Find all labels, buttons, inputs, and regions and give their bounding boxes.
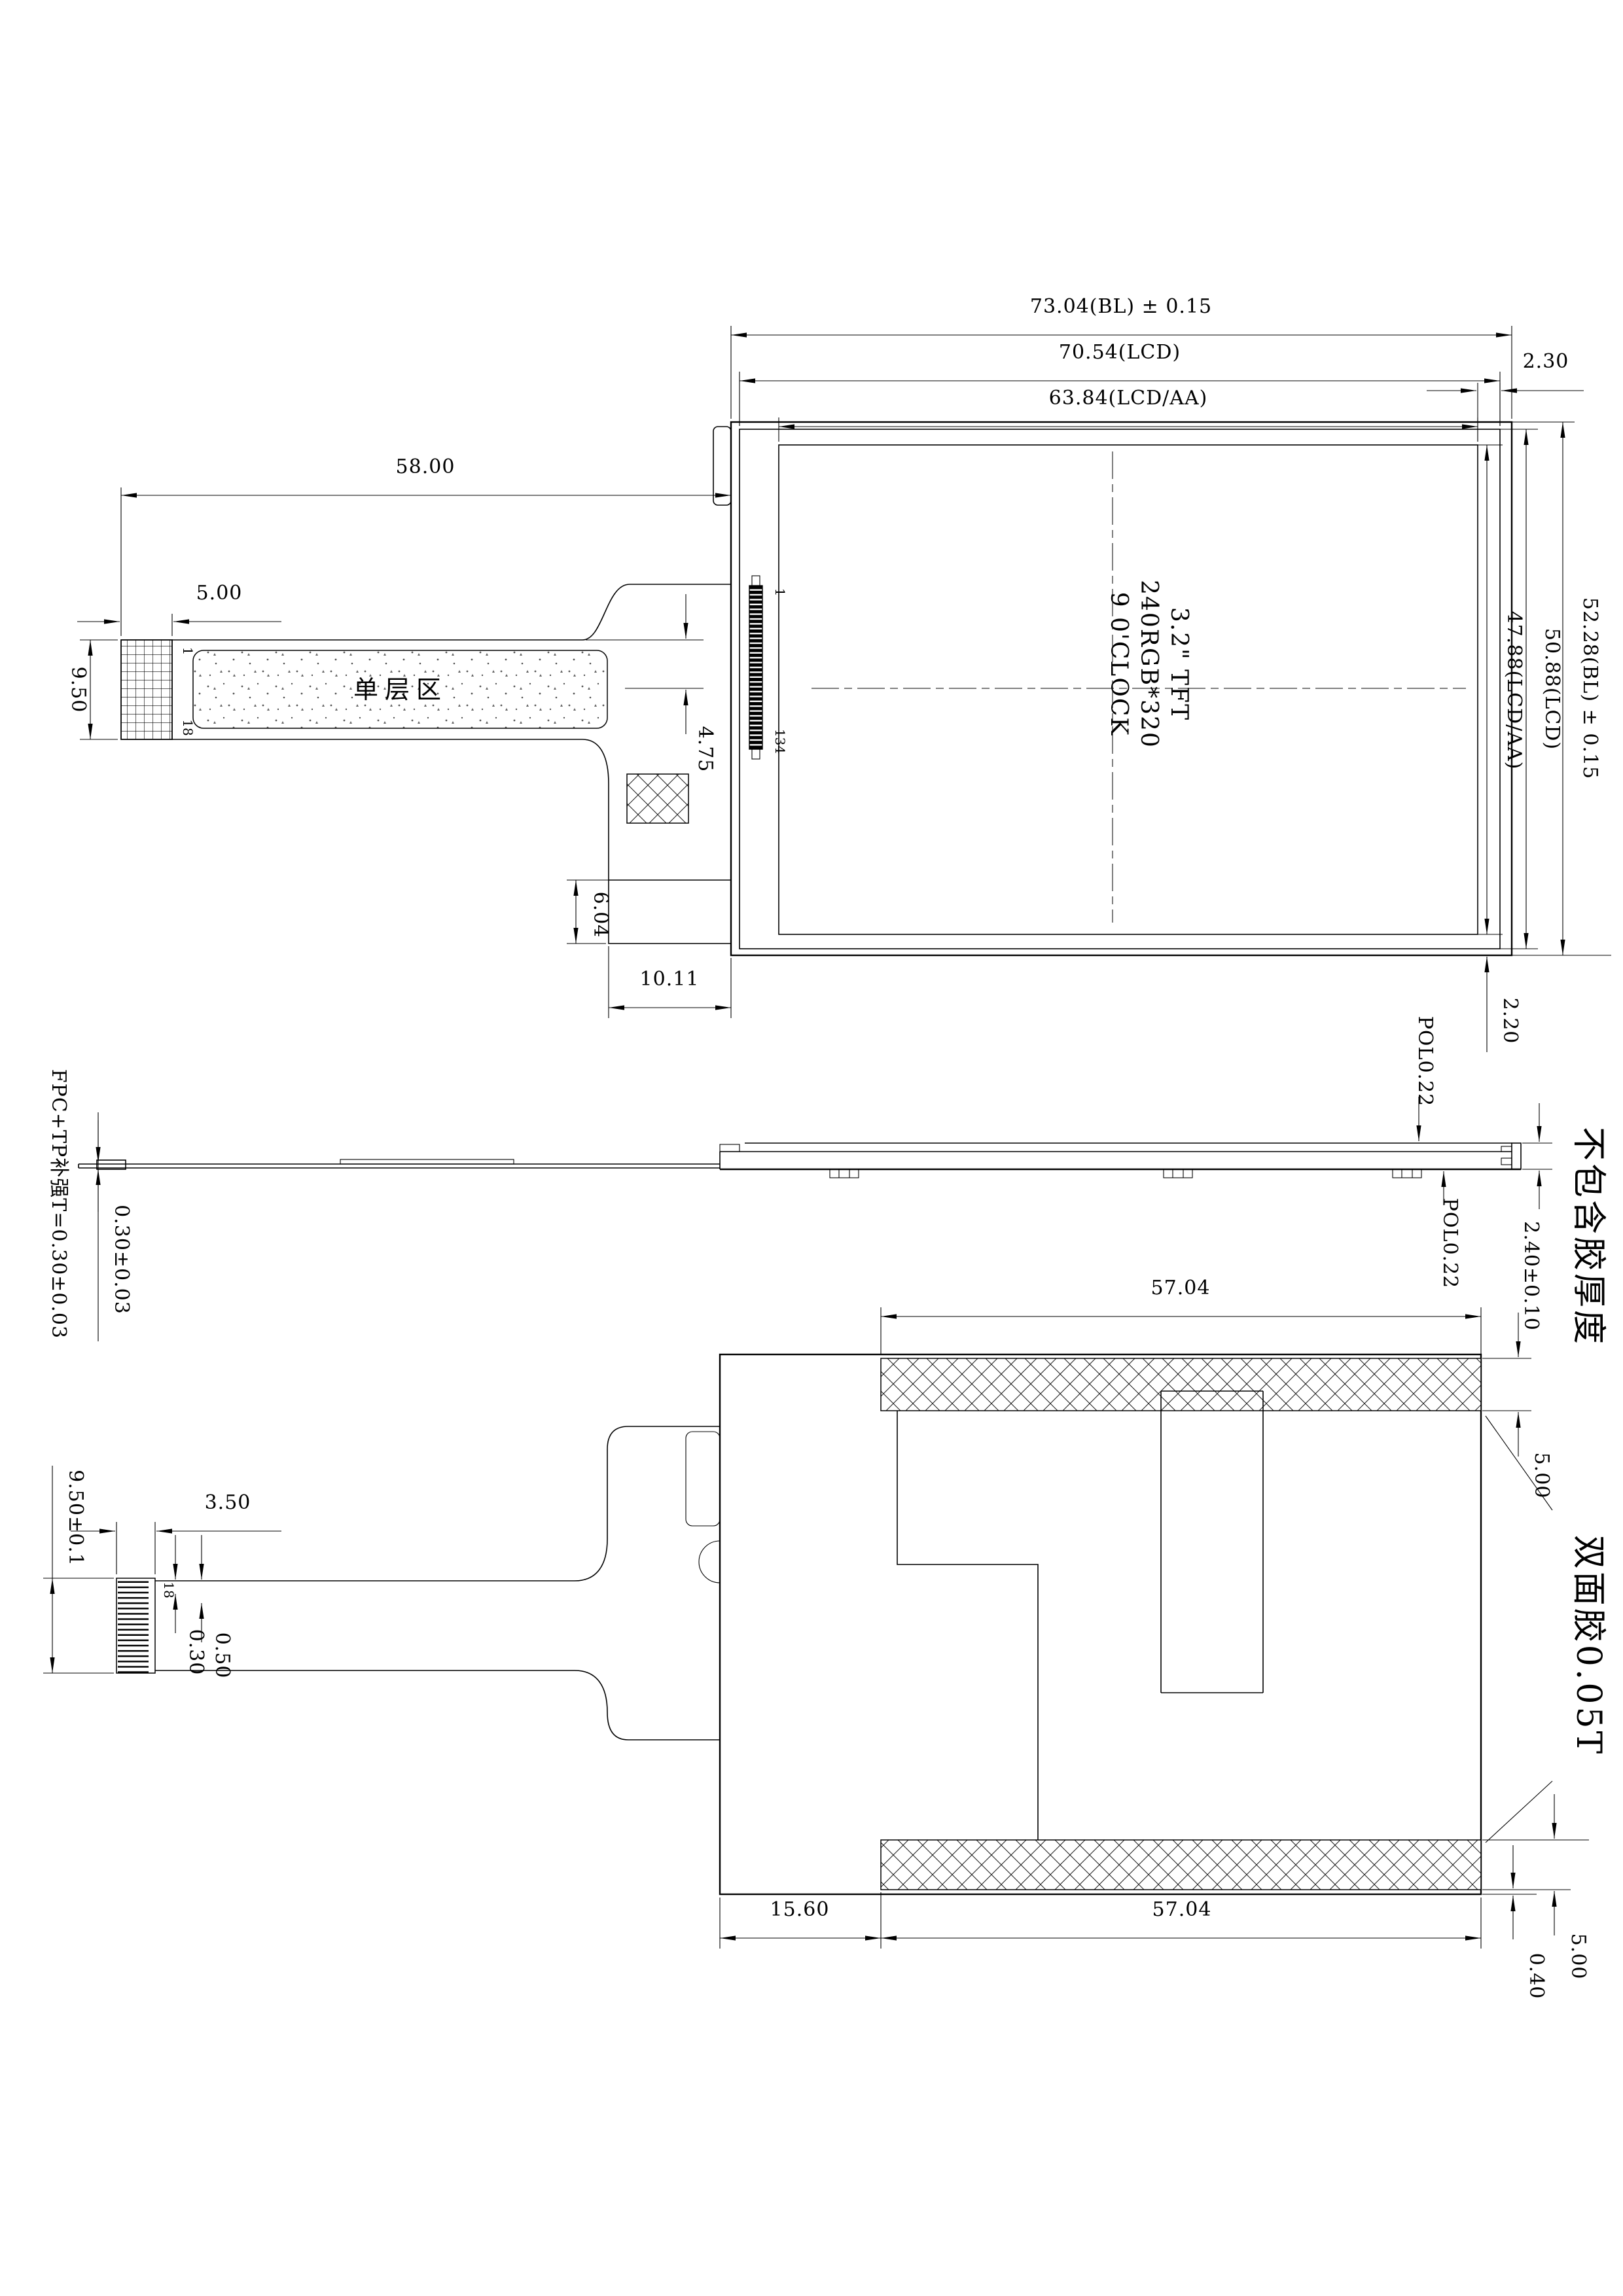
dim-finger-length: 5.00 [77,582,281,636]
dim-aa-width-text: 63.84(LCD/AA) [1049,387,1208,410]
back-inner-features [897,1391,1263,1840]
dim-lcd-height-text: 50.88(LCD) [1541,628,1563,750]
fpc-tail-bottom-edge [172,739,731,944]
label-pol-top: POL0.22 [1414,1016,1436,1141]
panel-size-label: 3.2" TFT [1166,607,1192,721]
dim-left-offset-text: 15.60 [770,1898,830,1921]
dim-aa-height: 47.88(LCD/AA) [1478,445,1525,934]
dim-tape-bottom-height-text: 5.00 [1567,1934,1590,1980]
back-pin18-label: 18 [161,1581,177,1598]
dim-aa-width: 63.84(LCD/AA) [779,387,1478,442]
lcd-module-drawing: 1 134 3.2" TFT 240RGB*320 9 0'CLOCK 1 18… [0,0,1623,2296]
back-fpc-tab [686,1432,720,1526]
dim-bl-height-text: 52.28(BL) ± 0.15 [1578,597,1601,779]
dim-aa-height-text: 47.88(LCD/AA) [1503,611,1525,770]
dim-fpc-thickness-text: 0.30±0.03 [110,1205,133,1315]
tape-strip-bottom [881,1840,1481,1890]
ic-pin-last-label: 134 [772,729,788,754]
dim-component-height: 6.04 [567,880,625,944]
fpc-gold-finger-connector [121,640,172,739]
fpc-component-hatch [627,774,688,823]
dim-tape-bottom-width: 57.04 [881,1898,1481,1949]
fpc-overlay-profile [340,1159,514,1164]
drawing-sheet: 1 134 3.2" TFT 240RGB*320 9 0'CLOCK 1 18… [0,0,1623,2296]
panel-spec-text: 3.2" TFT 240RGB*320 9 0'CLOCK [1105,580,1192,749]
dim-fpc-length-text: 58.00 [396,455,455,478]
fpc-pin1-label: 1 [180,647,196,656]
dim-fpc-thickness: 0.30±0.03 [98,1112,133,1341]
dim-tail-to-edge-text: 10.11 [640,968,700,991]
dim-tape-bottom-width-text: 57.04 [1152,1898,1212,1921]
ic-pad-end-top [752,576,760,586]
dim-module-thickness-text: 2.40±0.10 [1520,1221,1543,1331]
dim-back-connector-height: 9.50±0.1 [43,1466,114,1673]
note-excl-adhesive: 不包含胶厚度 [1569,1127,1608,1347]
dim-tape-top-width-text: 57.04 [1151,1277,1211,1299]
dim-lcd-width-text: 70.54(LCD) [1059,341,1181,364]
label-pol-bottom: POL0.22 [1438,1171,1461,1288]
dim-tape-bottom-offset-text: 0.40 [1525,1953,1548,2000]
module-right-cap [1512,1143,1521,1169]
dim-tape-top-height-text: 5.00 [1530,1453,1553,1499]
panel-resolution-label: 240RGB*320 [1135,580,1162,749]
dim-lcd-width: 70.54(LCD) [740,341,1500,426]
top-view: 1 134 3.2" TFT 240RGB*320 9 0'CLOCK 1 18… [67,295,1611,1052]
dim-finger-length-text: 5.00 [196,582,243,605]
dim-edge-gap-bottom: 2.20 [1487,955,1611,1052]
back-fpc-connector [116,1578,155,1673]
dim-edge-gap-right: 2.30 [1427,350,1584,442]
ic-pin-first-label: 1 [772,588,788,597]
dim-fpc-step-text: 4.75 [694,726,717,773]
bottom-view: 双面胶0.05T 57.04 5.00 9.50±0.1 3.50 0.30 0… [43,1277,1608,1999]
dim-tape-bottom-height: 5.00 [1482,1794,1590,1979]
dim-left-offset: 15.60 [720,1892,881,1949]
dim-connector-height: 9.50 [67,640,118,739]
dim-pin-width: 0.30 [175,1535,207,1675]
label-pol-top-text: POL0.22 [1414,1016,1436,1107]
dim-tape-bottom-offset: 0.40 [1482,1845,1548,1999]
left-fold-tab [713,427,731,505]
dim-edge-gap-right-text: 2.30 [1523,350,1569,373]
label-pol-bottom-text: POL0.22 [1438,1198,1461,1289]
dim-module-thickness: 2.40±0.10 [1520,1103,1552,1331]
dim-edge-gap-bottom-text: 2.20 [1499,998,1522,1044]
fpc-tail-top-edge [172,584,731,640]
dim-pin-width-text: 0.30 [185,1629,207,1676]
backlight-feet [830,1169,1421,1178]
back-outline [720,1354,1481,1894]
module-profile [720,1143,1521,1178]
dim-stiffener-width: 3.50 [71,1491,281,1574]
dim-tail-to-edge: 10.11 [609,946,731,1018]
tape-label-text: 双面胶0.05T [1569,1535,1608,1756]
note-fpc-stiffener: FPC+TP补强T=0.30±0.03 [47,1069,70,1339]
tape-strip-top [881,1358,1481,1411]
ic-pad-end-bottom [752,749,760,759]
dim-tape-top-width: 57.04 [881,1277,1481,1354]
dim-connector-height-text: 9.50 [67,667,90,713]
dim-fpc-length: 58.00 [121,455,731,636]
dim-tape-top-height: 5.00 [1482,1313,1553,1498]
dim-stiffener-width-text: 3.50 [205,1491,251,1514]
dim-bl-width-text: 73.04(BL) ± 0.15 [1030,295,1212,318]
dim-component-height-text: 6.04 [589,892,612,938]
side-view: POL0.22 POL0.22 2.40±0.10 不包含胶厚度 FPC+TP补… [47,1016,1608,1347]
dim-back-connector-height-text: 9.50±0.1 [64,1470,87,1566]
single-layer-zone-label: 单层区 [353,675,448,704]
back-fpc-notch [699,1541,720,1583]
dim-pin-pitch-text: 0.50 [211,1633,234,1679]
driver-ic-pad-strip [749,586,762,749]
back-tail-lower-transition [575,1670,720,1740]
back-tail-upper-transition [575,1426,720,1581]
panel-viewing-direction-label: 9 0'CLOCK [1105,592,1132,737]
